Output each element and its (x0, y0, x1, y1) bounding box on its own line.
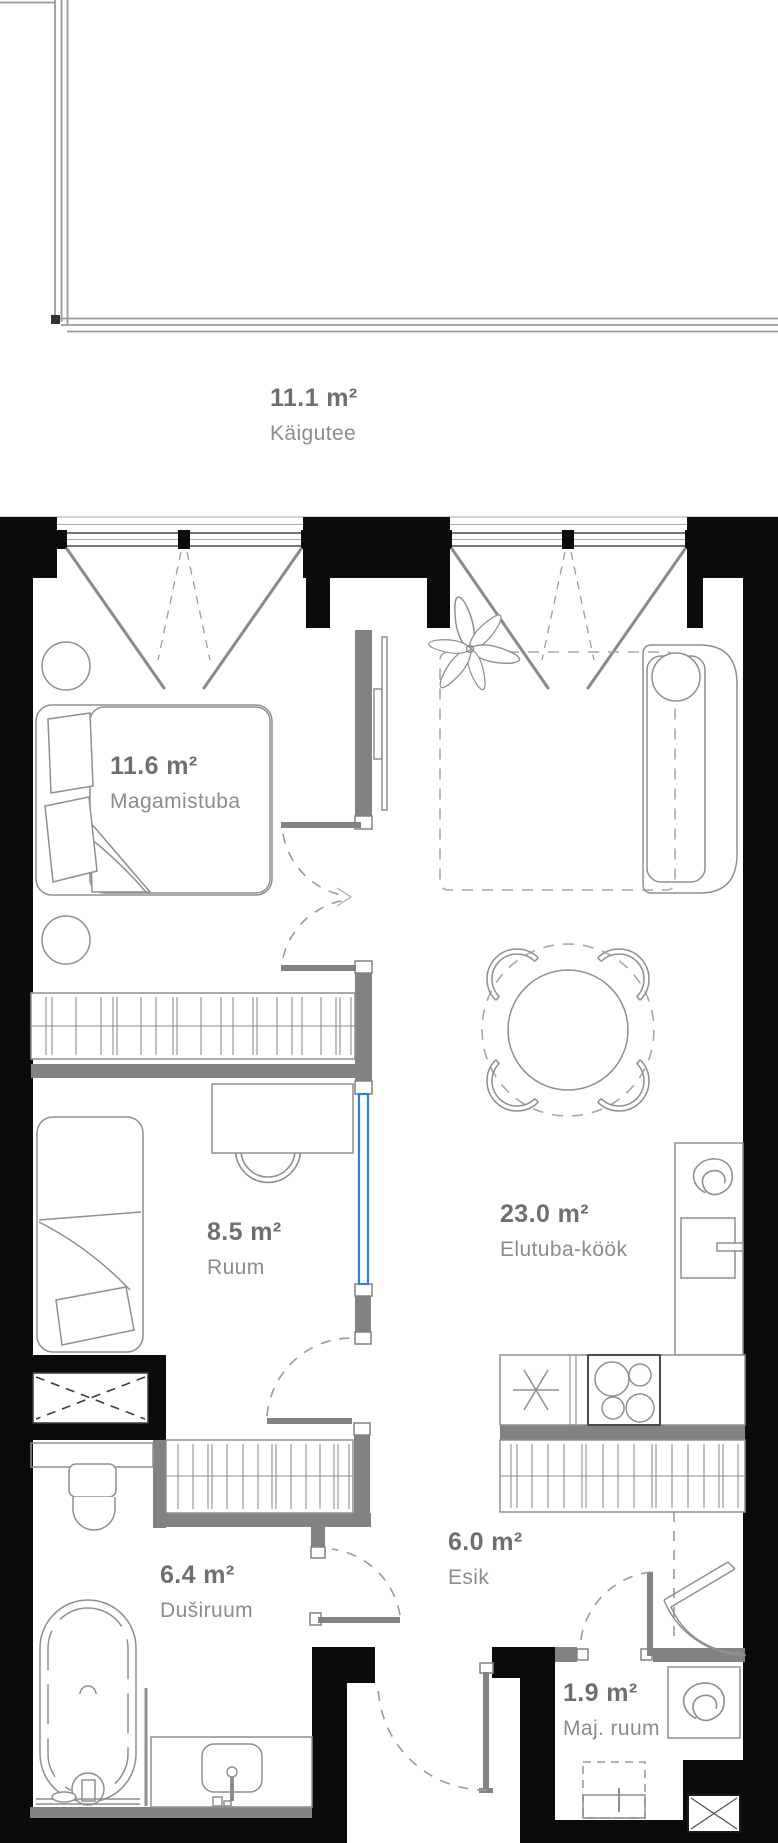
boiler-symbol (583, 1762, 645, 1818)
bedroom-door-leaf (281, 822, 361, 828)
ventilation-shaft-left (30, 1355, 166, 1440)
room-area: 11.1 m² (270, 384, 358, 413)
bathroom-door-swing (332, 1549, 400, 1615)
bathroom-door-leaf (318, 1617, 400, 1623)
room-name: Magamistuba (110, 790, 240, 814)
room-door-leaf (281, 965, 356, 971)
tall-cabinet (675, 1143, 743, 1355)
room-south-door-swing (267, 1338, 352, 1416)
room-area: 1.9 m² (563, 1679, 660, 1708)
bedroom-door-swing (283, 834, 347, 896)
room-label-ruum: 8.5 m² Ruum (207, 1218, 282, 1280)
rug-symbol (440, 652, 675, 890)
utility-door-leaf (647, 1572, 653, 1656)
toilet-symbol (69, 1464, 116, 1530)
room-label-elutuba-kook: 23.0 m² Elutuba-köök (500, 1200, 627, 1262)
room-label-maj-ruum: 1.9 m² Maj. ruum (563, 1679, 660, 1741)
window-leaf-lines (67, 549, 301, 688)
room-name: Esik (448, 1566, 523, 1590)
dining-set-symbol (475, 937, 662, 1124)
floor-plan: 11.1 m² Käigutee 11.6 m² Magamistuba 23.… (0, 0, 778, 1843)
bathroom-south-wall (30, 1807, 312, 1818)
wardrobe-symbol (31, 993, 355, 1059)
room-furniture (37, 1084, 353, 1352)
room-area: 23.0 m² (500, 1200, 627, 1229)
side-table (42, 642, 90, 690)
entrance-door-swing (378, 1686, 487, 1790)
daybed-symbol (37, 1117, 143, 1352)
hallway-closet-symbol (166, 1440, 353, 1513)
room-name: Ruum (207, 1256, 282, 1280)
bathtub-symbol (36, 1600, 140, 1805)
room-area: 8.5 m² (207, 1218, 282, 1247)
side-table (42, 916, 90, 964)
room-label-esik: 6.0 m² Esik (448, 1528, 523, 1590)
interior-window-blue (359, 1094, 368, 1284)
room-south-door-leaf (267, 1418, 352, 1424)
room-area: 11.6 m² (110, 752, 240, 781)
window-bedroom (55, 525, 313, 689)
front-door-symbol (664, 1562, 746, 1655)
room-name: Duširuum (160, 1599, 253, 1623)
bedroom-furniture (31, 642, 355, 1059)
kitchen-lower-cabinet (500, 1440, 745, 1512)
room-label-dusiruum: 6.4 m² Duširuum (160, 1561, 253, 1623)
kitchen-back-wall (500, 1425, 745, 1440)
desk-symbol (212, 1084, 353, 1153)
window-leaf-lines (452, 549, 685, 688)
door-swing-arcs (267, 834, 746, 1790)
appliance-handle (717, 1243, 743, 1251)
washing-machine-symbol (668, 1667, 740, 1738)
ventilation-shaft-right (688, 1795, 740, 1832)
room-name: Elutuba-köök (500, 1238, 627, 1262)
utility-door-swing (580, 1572, 651, 1650)
sofa-symbol (643, 645, 737, 893)
room-area: 6.0 m² (448, 1528, 523, 1557)
kitchen-fixtures (500, 1143, 745, 1512)
closet-back-wall (31, 1064, 355, 1078)
kitchen-counter (500, 1355, 745, 1425)
tv-wall (355, 630, 372, 824)
balcony-corner-post (51, 315, 60, 324)
room-label-kaigutee: 11.1 m² Käigutee (270, 384, 358, 446)
vanity-sink-symbol (151, 1737, 312, 1807)
room-area: 6.4 m² (160, 1561, 253, 1590)
dining-table (508, 970, 628, 1090)
floor-plan-canvas (0, 0, 778, 1843)
room-name: Käigutee (270, 422, 358, 446)
room-name: Maj. ruum (563, 1717, 660, 1741)
living-room-furniture (428, 595, 737, 1123)
swing-arrow (337, 888, 351, 906)
tv-symbol (374, 637, 387, 810)
desk-chair (236, 1150, 301, 1182)
room-label-magamistuba: 11.6 m² Magamistuba (110, 752, 240, 814)
balcony-outline (0, 0, 778, 332)
room-door-swing (283, 900, 347, 958)
entrance-door-leaf (483, 1672, 489, 1792)
